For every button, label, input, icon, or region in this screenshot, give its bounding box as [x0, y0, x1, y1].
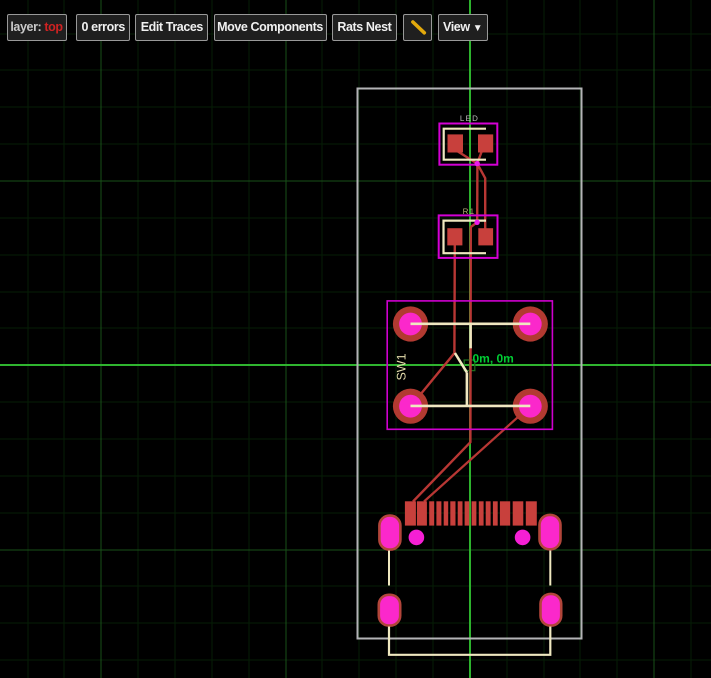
svg-text:R1: R1: [463, 207, 476, 216]
svg-text:LED: LED: [460, 114, 479, 123]
svg-text:0m, 0m: 0m, 0m: [473, 352, 514, 366]
svg-text:SW1: SW1: [395, 353, 409, 380]
